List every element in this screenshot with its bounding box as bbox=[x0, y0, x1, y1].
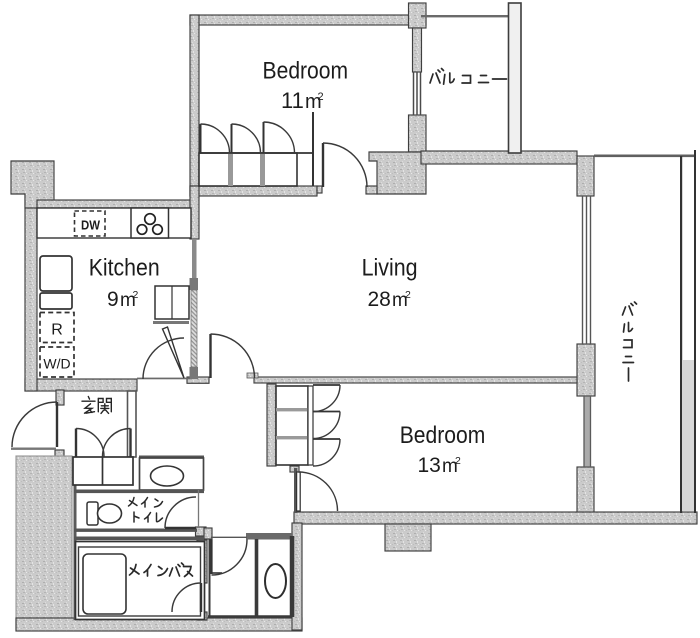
svg-text:9: 9 bbox=[107, 288, 119, 311]
svg-text:Kitchen: Kitchen bbox=[89, 255, 160, 282]
svg-text:W/D: W/D bbox=[43, 356, 70, 372]
svg-text:2: 2 bbox=[405, 289, 411, 301]
svg-text:Bedroom: Bedroom bbox=[400, 422, 486, 449]
svg-text:2: 2 bbox=[133, 289, 139, 301]
svg-text:Living: Living bbox=[362, 255, 418, 282]
svg-text:28: 28 bbox=[368, 288, 391, 311]
svg-text:Bedroom: Bedroom bbox=[263, 58, 349, 85]
svg-text:R: R bbox=[51, 322, 63, 339]
svg-text:11: 11 bbox=[281, 88, 304, 113]
svg-text:2: 2 bbox=[318, 91, 324, 103]
svg-text:2: 2 bbox=[455, 455, 461, 467]
svg-text:13: 13 bbox=[418, 454, 441, 477]
svg-text:DW: DW bbox=[81, 218, 101, 233]
